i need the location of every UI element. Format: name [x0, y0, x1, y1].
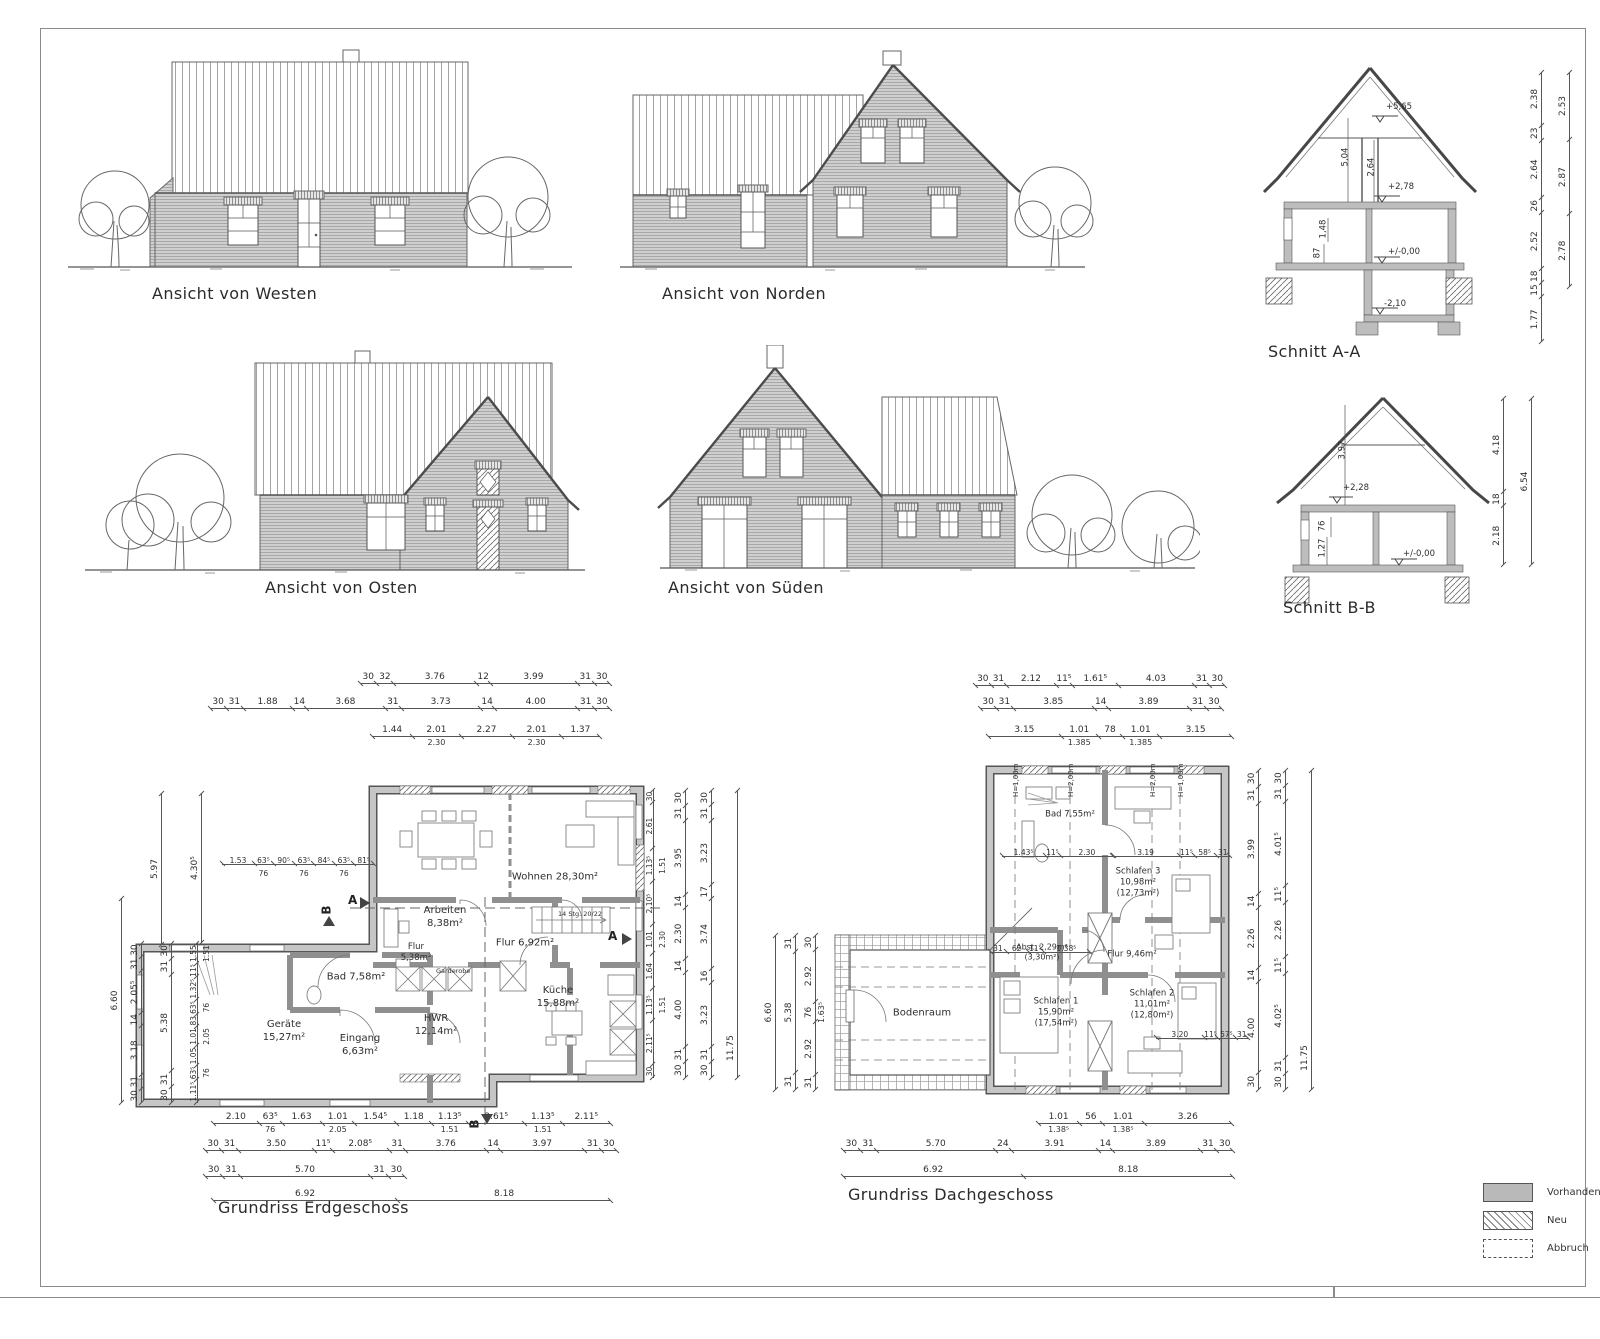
elevation-west: [60, 45, 580, 290]
legend-swatch-new: [1483, 1211, 1533, 1230]
dimension-value: 1.011.385: [1122, 726, 1159, 741]
dimension-value: 2.27: [461, 726, 513, 741]
level-eg: +/-0,00: [1403, 549, 1435, 559]
legend-label-new: Neu: [1547, 1215, 1567, 1226]
dimension-value: 6.54: [1521, 398, 1536, 565]
dimension-value: 3.74: [701, 899, 716, 970]
dimension-value: 4.03: [1118, 675, 1194, 690]
room-schlafen-2: Schlafen 2 11,01m²(12,80m²): [1120, 988, 1184, 1021]
dimension-value: 1.43⁵: [1002, 849, 1045, 861]
dimension-value: 90⁵: [273, 857, 295, 869]
room-schlafen-1: Schlafen 1 15,90m²(17,54m²): [1024, 996, 1088, 1029]
eg-dim-top-3: 1.442.012.302.272.012.301.37: [372, 723, 600, 741]
dimension-value: 3.95: [675, 821, 690, 895]
legend-label-existing: Vorhanden: [1547, 1187, 1600, 1198]
height-line-label-1: H=1,00m: [1012, 763, 1020, 797]
dimension-value: 1.18: [396, 1113, 430, 1128]
elevation-east-drawing: [85, 350, 585, 590]
dimension-value: 30: [1248, 770, 1263, 787]
section-aa-dim-chain-outer: 2.782.872.53: [1556, 72, 1574, 287]
dimension-value: 81⁵: [353, 857, 374, 869]
dimension-value: 1.551.51: [190, 943, 202, 964]
dimension-value: 3.20: [1156, 1031, 1204, 1043]
dimension-value: 3.89: [1108, 698, 1190, 713]
dimension-value: 2.92: [805, 1022, 820, 1075]
dimension-value: 3.97: [500, 1140, 584, 1155]
legend-label-demolition: Abbruch: [1547, 1243, 1589, 1254]
dim-roof-height: 3,97: [1337, 441, 1347, 460]
dimension-value: 2.78: [1559, 214, 1574, 287]
dimension-value: 1.011.385: [1061, 726, 1098, 741]
dimension-value: 30: [1275, 770, 1290, 786]
eg-dim-bottom-2: 30313.5011⁵2.08⁵313.76143.973130: [205, 1137, 617, 1155]
room-schlafen-3: Schlafen 3 10,98m²(12,73m²): [1107, 866, 1169, 899]
dimension-value: 31: [785, 935, 800, 952]
eg-dim-left-mid2: 30315.383130: [158, 943, 176, 1103]
floorplan-dachgeschoss: 30312.1211⁵1.61⁵4.033130 30313.85143.893…: [760, 665, 1440, 1220]
dimension-value: 2.08⁵: [332, 1140, 389, 1155]
dim-76: 76: [1317, 521, 1327, 532]
room-bodenraum: Bodenraum: [872, 1007, 972, 1020]
dimension-value: 30: [675, 790, 690, 806]
dimension-value: 2.87: [1559, 140, 1574, 214]
dimension-value: 1.37: [561, 726, 600, 741]
og-dim-right-inner: 304.00142.26143.993130: [1245, 770, 1263, 1090]
dimension-value: 30: [701, 1062, 716, 1078]
dimension-value: 30: [701, 790, 716, 806]
dimension-value: 4.00: [675, 973, 690, 1047]
room-flur-eg: Flur 6,92m²: [470, 937, 580, 950]
room-bad-eg: Bad 7,58m²: [309, 971, 403, 984]
dimension-value: 2.38: [1531, 72, 1546, 126]
eg-dim-bottom-3: 30315.703130: [205, 1163, 405, 1181]
dimension-value: 2.05⁵: [131, 971, 146, 1013]
og-dim-left-outer: 6.60: [762, 935, 780, 1090]
dimension-value: 30: [388, 1166, 405, 1181]
dimension-value: 1.13⁵1.51: [431, 1113, 468, 1128]
dim-attic-height: 2,64: [1366, 158, 1376, 177]
dimension-value: 3.23: [701, 983, 716, 1047]
dimension-value: 3.85: [1013, 698, 1094, 713]
room-hwr: HWR 12,14m²: [407, 1012, 465, 1038]
dimension-value: 3.15: [1159, 726, 1232, 741]
dimension-value: 5.97: [151, 793, 166, 945]
dimension-value: 1.53: [222, 857, 254, 869]
dimension-value: 31: [1216, 849, 1230, 861]
section-marker-a-left-arrow: [360, 897, 370, 909]
eg-dim-right-inner: 302.11⁵1.13⁵1.511.641.012.302.10⁵1.13⁵1.…: [644, 790, 657, 1078]
section-aa-dim-chain-inner: 1.7715182.52262.64232.38: [1528, 72, 1546, 342]
dimension-value: 3.15: [988, 726, 1061, 741]
dimension-value: 63⁵76: [190, 1000, 202, 1014]
dim-roof-height: 5,04: [1340, 148, 1350, 167]
dimension-value: 6.92: [843, 1166, 1023, 1181]
eg-dim-top-2: 30311.88143.68313.73144.003130: [210, 695, 610, 713]
dimension-value: 30: [161, 1087, 176, 1103]
dimension-value: 4.30⁵: [191, 793, 206, 943]
dimension-value: 5.38: [161, 975, 176, 1072]
dimension-value: 58⁵: [1194, 849, 1216, 861]
dimension-value: 1.13⁵1.51: [524, 1113, 561, 1128]
dim-127: 1,27: [1317, 539, 1327, 558]
elevation-east-label: Ansicht von Osten: [265, 578, 418, 597]
elevation-west-label: Ansicht von Westen: [152, 284, 317, 303]
level-og: +2,28: [1343, 483, 1369, 493]
elevation-west-drawing: [60, 45, 580, 290]
elevation-east: [85, 350, 585, 590]
dimension-value: 3.18: [131, 1026, 146, 1075]
dimension-value: 1.012.05: [190, 1027, 202, 1047]
eg-dim-right-mid: 30314.00142.30143.953130: [672, 790, 690, 1078]
room-bad-og: Bad 7,55m²: [1045, 809, 1095, 820]
dimension-value: 11.75: [1301, 1026, 1316, 1090]
dimension-value: 2.30: [1060, 849, 1114, 861]
dimension-value: 1.54⁵: [354, 1113, 397, 1128]
eg-dim-interior: 1.5363⁵7690⁵63⁵7684⁵63⁵7681⁵: [222, 855, 374, 868]
dimension-value: 63⁵76: [190, 1066, 202, 1080]
section-bb-dim-chain-inner: 2.18184.18: [1490, 398, 1508, 565]
level-basement: -2,10: [1384, 299, 1406, 309]
dimension-value: 2.012.30: [412, 726, 460, 741]
dimension-value: 30: [131, 943, 146, 957]
legend-swatch-existing: [1483, 1183, 1533, 1202]
dimension-value: 14: [1248, 894, 1263, 908]
section-aa-label: Schnitt A-A: [1268, 342, 1361, 361]
dimension-value: 30: [161, 943, 176, 959]
dimension-value: 31: [701, 806, 716, 822]
dimension-value: 14: [1248, 968, 1263, 982]
dimension-value: 3.76: [393, 673, 476, 688]
og-dim-right-mid: 30314.02⁵11⁵2.2611⁵4.01⁵3130: [1272, 770, 1290, 1090]
dimension-value: 2.10⁵: [646, 882, 658, 926]
og-dim-left-mid: 315.3831: [782, 935, 800, 1090]
eg-dim-left-outer: 6.60: [108, 898, 126, 1103]
dimension-value: 1.88: [243, 698, 293, 713]
dimension-value: 2.11⁵: [562, 1113, 611, 1128]
room-eingang: Eingang 6,63m²: [331, 1032, 389, 1058]
dimension-value: 2.11⁵: [646, 1021, 658, 1065]
dimension-value: 30: [1248, 1073, 1263, 1090]
dim-87: 87: [1312, 248, 1322, 259]
dimension-value: 30: [601, 1140, 617, 1155]
floorplan-erdgeschoss: 30323.76123.993130 30311.88143.68313.731…: [100, 665, 740, 1220]
room-arbeiten: Arbeiten 8,38m²: [413, 904, 477, 930]
legend-item-abbruch: Abbruch: [1483, 1239, 1589, 1258]
height-line-label-2: H=2,00m: [1067, 763, 1075, 797]
title-block-divider: [1333, 1286, 1335, 1298]
og-dim-top-3: 3.151.011.385781.011.3853.15: [988, 723, 1232, 741]
dimension-value: 3.26: [1144, 1113, 1232, 1128]
height-line-label-4: H=1,00m: [1177, 763, 1185, 797]
section-marker-a-right-arrow: [622, 933, 632, 945]
dimension-value: 2.12: [1006, 675, 1055, 690]
dimension-value: 3.91: [1011, 1140, 1099, 1155]
dimension-value: 1.012.05: [322, 1113, 354, 1128]
dimension-value: 3.23: [701, 821, 716, 885]
dimension-value: 2.012.30: [512, 726, 560, 741]
dimension-value: 2.18: [1493, 506, 1508, 565]
legend-swatch-demolition: [1483, 1239, 1533, 1258]
section-marker-a-left: A: [348, 893, 357, 907]
dimension-value: 4.00: [494, 698, 578, 713]
section-marker-b-bottom-arrow: [481, 1114, 493, 1124]
dimension-value: 30: [594, 673, 610, 688]
elevation-north-label: Ansicht von Norden: [662, 284, 826, 303]
dimension-value: 1.11⁵: [190, 1080, 202, 1103]
dimension-value: 30: [1216, 1140, 1233, 1155]
floorplan-eg-label: Grundriss Erdgeschoss: [218, 1198, 409, 1217]
og-dim-int-2: 3.1911⁵58⁵31: [1112, 847, 1230, 860]
title-block-line: [0, 1297, 1600, 1298]
og-dim-left-inner: 312.92761.63⁵2.9230: [802, 935, 820, 1090]
dimension-value: 3.19: [1112, 849, 1179, 861]
dimension-value: 4.02⁵: [1275, 974, 1290, 1058]
dimension-value: 11⁵: [190, 964, 202, 977]
dimension-value: 2.53: [1559, 72, 1574, 140]
dimension-value: 2.61: [646, 803, 658, 849]
dimension-value: 1.13⁵1.51: [646, 989, 658, 1022]
dimension-value: 3.99: [1248, 804, 1263, 895]
dimension-value: 1.011.38⁵: [1038, 1113, 1079, 1128]
floorplan-og-label: Grundriss Dachgeschoss: [848, 1185, 1054, 1204]
dimension-value: 4.01⁵: [1275, 802, 1290, 886]
og-dim-bottom-1: 1.011.38⁵561.011.38⁵3.26: [1038, 1110, 1232, 1128]
label-garderobe: Garderobe: [436, 968, 470, 975]
height-line-label-3: H=2,00m: [1149, 763, 1157, 797]
dimension-value: 30: [646, 1065, 658, 1078]
dimension-value: 1.012.30: [646, 925, 658, 953]
section-bb-dim-chain-outer: 6.54: [1518, 398, 1536, 565]
section-marker-b-top: B: [320, 905, 334, 914]
dimension-value: 3.89: [1112, 1140, 1199, 1155]
section-aa: +5,65 5,04 2,64 +2,78 1,48 87 +/-0,00 -2…: [1240, 50, 1570, 350]
dimension-value: 8.18: [397, 1190, 611, 1205]
og-dim-right-total: 11.75: [1298, 770, 1316, 1090]
dimension-value: 3.99: [490, 673, 577, 688]
dimension-value: 4.18: [1493, 398, 1508, 492]
dimension-value: 1.011.38⁵: [1102, 1113, 1143, 1128]
og-dim-int-4: 3.2011⁵57⁵31: [1156, 1029, 1248, 1042]
room-kueche: Küche 15,88m²: [529, 984, 587, 1010]
eg-dim-left-mid1: 30313.18142.05⁵3130: [128, 943, 146, 1103]
dimension-value: 31: [990, 945, 1006, 957]
dimension-value: 1.63: [282, 1113, 322, 1128]
elevation-north: [615, 45, 1105, 290]
dimension-value: 6.60: [765, 935, 780, 1090]
dimension-value: 30: [594, 698, 610, 713]
dimension-value: 30: [675, 1062, 690, 1078]
dimension-value: 1.32⁵: [190, 977, 202, 1000]
dimension-value: 8.18: [1023, 1166, 1233, 1181]
legend-item-neu: Neu: [1483, 1211, 1567, 1230]
dimension-value: 30: [1209, 675, 1225, 690]
section-marker-b-bottom: B: [468, 1119, 482, 1128]
dimension-value: 2.64: [1531, 141, 1546, 199]
dimension-value: 3.68: [306, 698, 384, 713]
eg-dim-left-inner: 1.11⁵63⁵761.051.012.058363⁵761.32⁵11⁵1.5…: [188, 943, 201, 1103]
dimension-value: 3.50: [238, 1140, 315, 1155]
dimension-value: 2.30: [675, 908, 690, 959]
eg-dim-right-outer: 30313.23163.74173.233130: [698, 790, 716, 1078]
elevation-south: [640, 345, 1200, 593]
dimension-value: 11.75: [727, 1018, 742, 1078]
dim-148: 1,48: [1318, 220, 1328, 239]
section-marker-b-top-arrow: [323, 916, 335, 926]
dimension-value: 30: [1206, 698, 1222, 713]
og-dim-bottom-2: 30315.70243.91143.893130: [843, 1137, 1233, 1155]
og-dim-top-1: 30312.1211⁵1.61⁵4.033130: [975, 672, 1225, 690]
dimension-value: 761.63⁵: [805, 1002, 820, 1022]
dimension-value: 84⁵: [313, 857, 334, 869]
level-og: +2,78: [1388, 182, 1414, 192]
eg-dim-top-1: 30323.76123.993130: [360, 670, 610, 688]
elevation-north-drawing: [615, 45, 1105, 290]
room-flur-og: Flur 9,46m²: [1107, 949, 1157, 960]
level-eg: +/-0,00: [1388, 247, 1420, 257]
dimension-value: 6.60: [111, 898, 126, 1103]
room-flur-klein: Flur 5,38m²: [393, 942, 439, 964]
label-stair: 14 Stg. 20/22: [558, 911, 602, 918]
dimension-value: 11⁵: [1275, 957, 1290, 974]
dimension-value: 30: [646, 790, 658, 803]
dimension-value: 2.52: [1531, 213, 1546, 269]
dimension-value: 30: [805, 935, 820, 950]
section-marker-a-right: A: [608, 929, 617, 943]
dimension-value: 31: [161, 1071, 176, 1087]
dimension-value: 5.70: [876, 1140, 995, 1155]
og-dim-int-1: 1.43⁵11⁵2.30: [1002, 847, 1114, 860]
dimension-value: 1.13⁵1.51: [646, 849, 658, 882]
dimension-value: 63⁵76: [259, 1113, 282, 1128]
room-wohnen: Wohnen 28,30m²: [490, 871, 620, 884]
room-abstellraum: Abst. 2,29m²(3,30m²): [1016, 943, 1068, 964]
eg-dim-right-total: 11.75: [724, 790, 742, 1078]
og-dim-top-2: 30313.85143.893130: [980, 695, 1222, 713]
dimension-value: 2.26: [1248, 908, 1263, 968]
dimension-value: 1.44: [372, 726, 412, 741]
eg-dim-left-597: 5.97: [148, 793, 166, 945]
section-bb-label: Schnitt B-B: [1283, 598, 1376, 617]
dimension-value: 1.61⁵: [1072, 675, 1118, 690]
dimension-value: 1.77: [1531, 297, 1546, 342]
eg-dim-left-430: 4.30⁵: [188, 793, 206, 943]
architectural-plan-sheet: Ansicht von Westen: [0, 0, 1600, 1339]
room-geraete: Geräte 15,27m²: [255, 1018, 313, 1044]
dimension-value: 63⁵76: [254, 857, 273, 869]
dimension-value: 63⁵76: [334, 857, 353, 869]
dimension-value: 1.05: [190, 1046, 202, 1066]
dimension-value: 5.38: [785, 952, 800, 1073]
dimension-value: 2.10: [213, 1113, 259, 1128]
dimension-value: 5.70: [240, 1166, 371, 1181]
elevation-south-drawing: [640, 345, 1200, 593]
legend-item-vorhanden: Vorhanden: [1483, 1183, 1600, 1202]
dimension-value: 2.26: [1275, 903, 1290, 957]
level-ridge: +5,65: [1386, 102, 1412, 112]
dimension-value: 83: [190, 1015, 202, 1027]
dimension-value: 4.00: [1248, 982, 1263, 1073]
dimension-value: 11⁵: [1275, 886, 1290, 903]
dimension-value: 2.92: [805, 950, 820, 1003]
dimension-value: 3.73: [401, 698, 480, 713]
og-dim-bottom-3: 6.928.18: [843, 1163, 1233, 1181]
dimension-value: 1.64: [646, 954, 658, 989]
elevation-south-label: Ansicht von Süden: [668, 578, 824, 597]
eg-dim-bottom-1: 2.1063⁵761.631.012.051.54⁵1.181.13⁵1.512…: [213, 1110, 611, 1128]
dimension-value: 31: [1235, 1031, 1248, 1043]
dimension-value: 3.76: [405, 1140, 486, 1155]
